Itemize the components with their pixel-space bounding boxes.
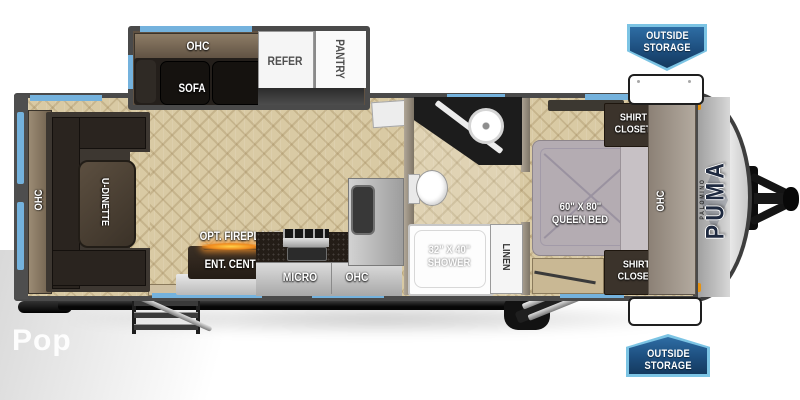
fireplace-flame-icon	[202, 243, 260, 250]
rear-ohc-label: OHC	[33, 189, 45, 210]
kitchen-base-cabinets	[256, 262, 402, 296]
kitchen-sink	[351, 185, 375, 235]
stove-body	[283, 238, 329, 247]
bedroom-ohc-label: OHC	[655, 190, 667, 211]
step-tread	[134, 324, 198, 330]
rear-window-top	[17, 112, 24, 184]
bathroom-sink	[468, 108, 504, 144]
slide-ohc-label: OHC	[187, 39, 210, 53]
queen-bed-label: 60" X 80" QUEEN BED	[547, 201, 612, 227]
badge-top-core: OUTSIDE STORAGE	[630, 27, 704, 68]
shower-label: 32" X 40" SHOWER	[424, 244, 474, 270]
brand-maker: PALOMINO	[700, 178, 706, 219]
storage-door-top	[628, 74, 704, 105]
bed-folded-sheet	[620, 142, 649, 252]
sofa-armrest	[136, 60, 156, 103]
outside-storage-badge-top: OUTSIDE STORAGE	[627, 24, 707, 71]
floorplan-canvas: PUMA PALOMINO OHC U-DINETTE OHC SOFA REF…	[0, 0, 800, 400]
u-dinette-label: U-DINETTE	[99, 178, 111, 226]
badge-top-line2: STORAGE	[643, 42, 690, 54]
badge-bottom-line1: OUTSIDE	[647, 348, 690, 360]
micro-label: MICRO	[283, 270, 317, 284]
rear-window-bottom	[17, 202, 24, 270]
shirt-text: SHIRT	[622, 259, 649, 271]
closet-text: CLOSET	[615, 124, 652, 136]
shower-text: SHOWER	[428, 257, 471, 270]
sofa-label: SOFA	[179, 83, 206, 95]
kitchen-cabinet-divider	[331, 263, 332, 294]
slide-counter	[258, 88, 364, 105]
badge-top-line1: OUTSIDE	[646, 30, 689, 42]
watermark: Pop	[12, 324, 72, 358]
hitch-coupler	[783, 187, 799, 211]
stove-burners	[283, 229, 329, 238]
badge-bottom-line2: STORAGE	[644, 360, 691, 372]
shirt-text: SHIRT	[619, 112, 646, 124]
bed-size-text: 60" X 80"	[559, 201, 601, 214]
kitchen-ohc-label: OHC	[346, 270, 369, 284]
refer-label: REFER	[268, 54, 303, 68]
slide-window-left	[128, 55, 133, 89]
oven-window	[287, 247, 327, 261]
shower-size-text: 32" X 40"	[428, 244, 470, 257]
badge-bottom-core: OUTSIDE STORAGE	[629, 337, 707, 374]
bed-text: QUEEN BED	[552, 214, 608, 227]
storage-door-top-pin	[688, 80, 691, 83]
toilet	[416, 170, 448, 206]
linen-label: LINEN	[500, 243, 512, 270]
storage-door-bottom	[628, 297, 702, 326]
pantry-label: PANTRY	[333, 39, 345, 79]
u-dinette-bench-bottom	[52, 250, 146, 286]
stove	[282, 228, 330, 262]
outside-storage-badge-bottom: OUTSIDE STORAGE	[626, 334, 710, 377]
bathroom-wall-right-upper	[521, 98, 530, 172]
window-top-left	[30, 95, 102, 101]
sofa-cushion	[212, 61, 264, 105]
slide-window-top	[140, 26, 252, 32]
storage-door-top-pin	[637, 80, 640, 83]
